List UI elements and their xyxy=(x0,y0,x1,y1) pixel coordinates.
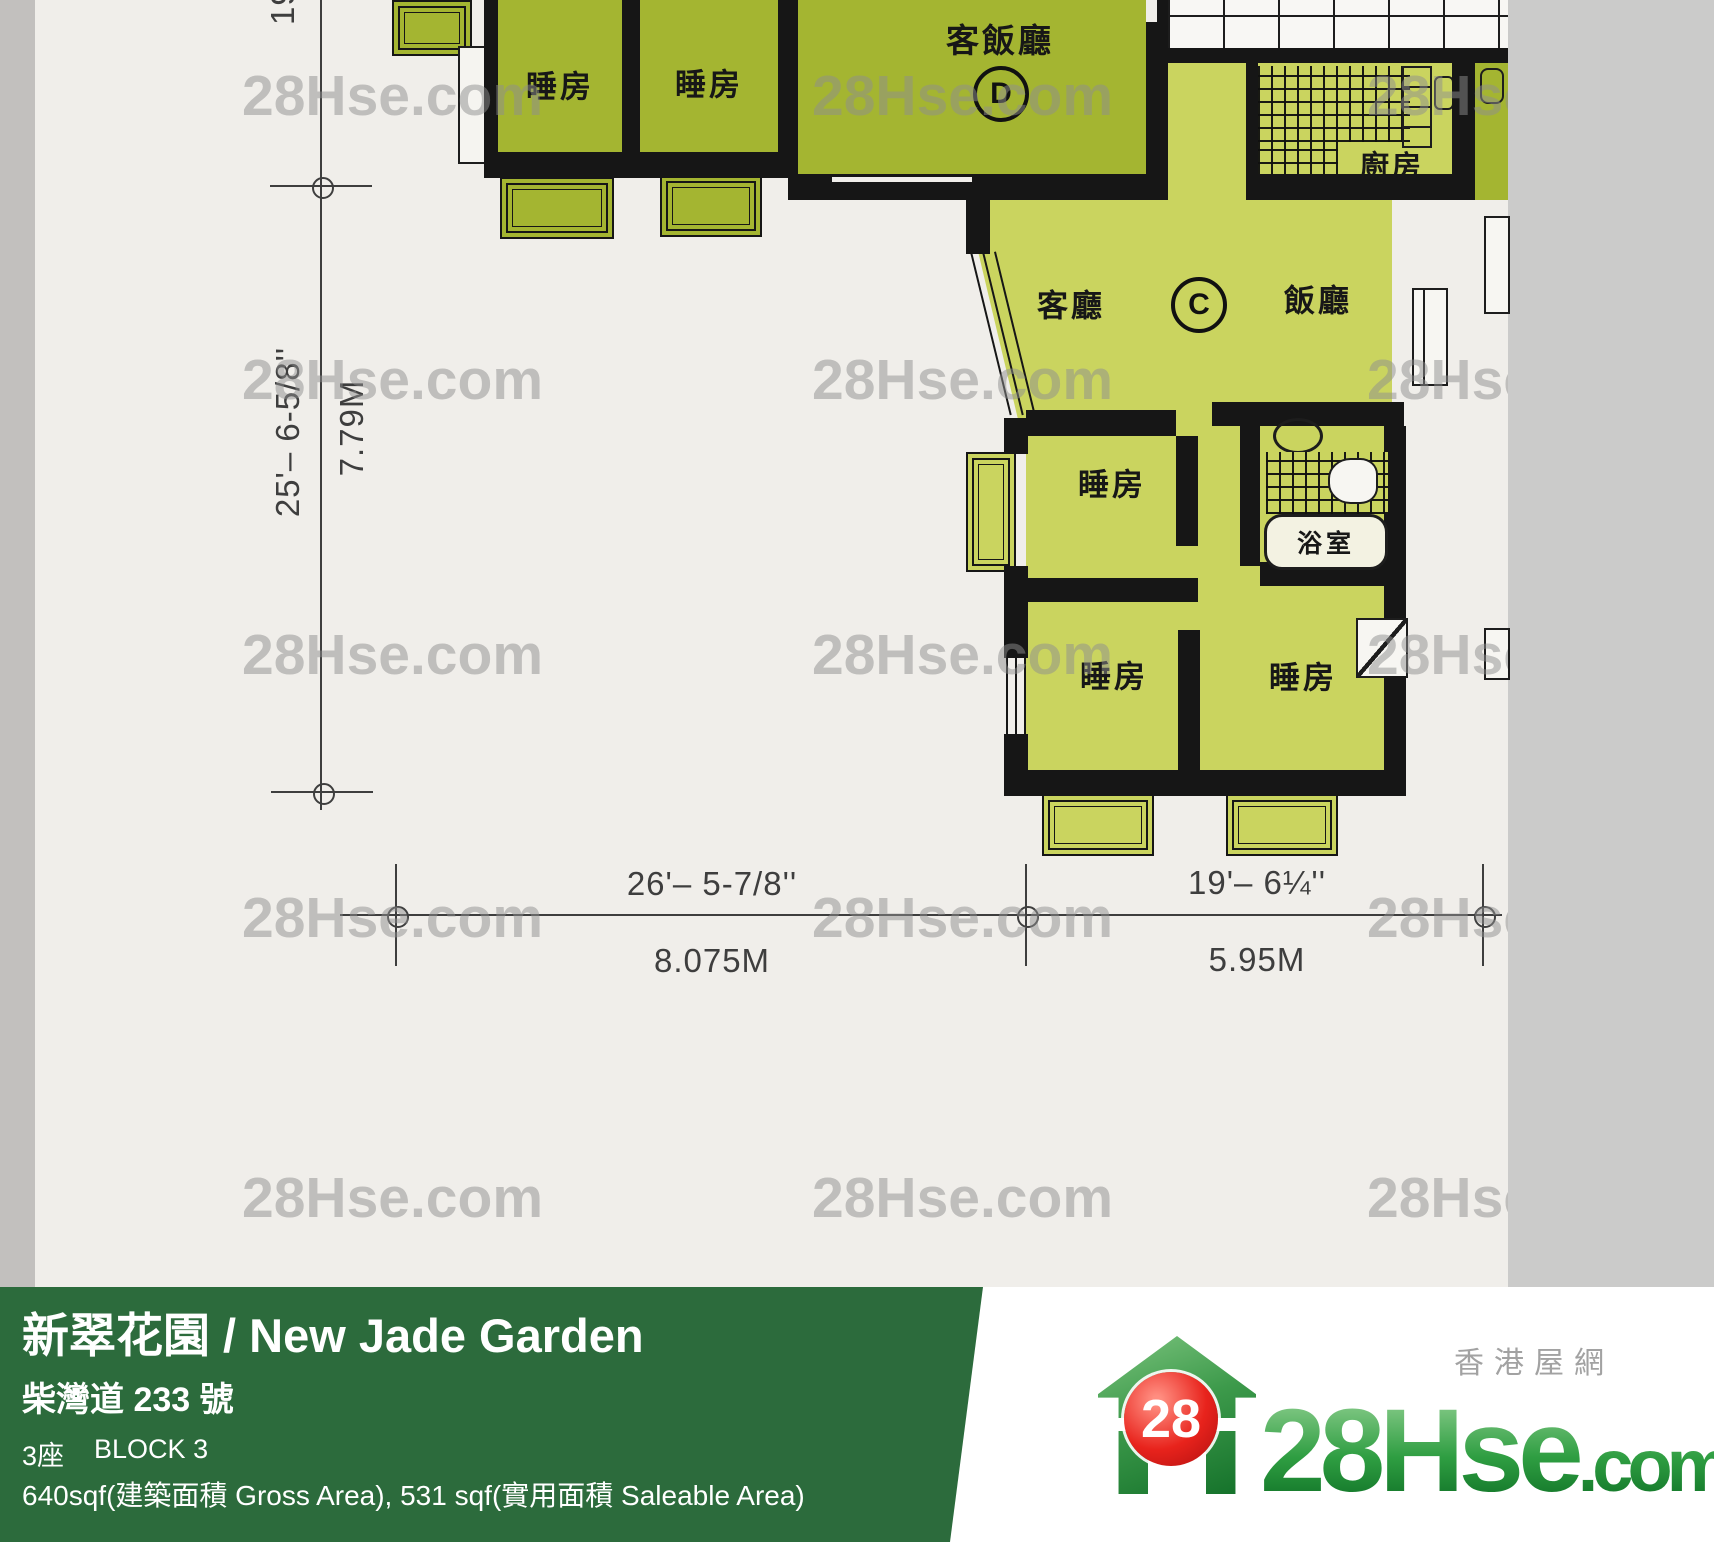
watermark-text: 28Hse.com xyxy=(812,885,1113,951)
watermark-text: 28Hse.com xyxy=(1367,1165,1508,1231)
floorplan-page: 浴室 睡房 睡房 客飯廳 D 廚房 客廳 C 飯廳 睡房 睡房 睡房 25'– … xyxy=(0,0,1714,1542)
watermark-text: 28Hse.com xyxy=(242,622,543,688)
block-en: BLOCK 3 xyxy=(94,1434,208,1473)
watermark-layer: 28Hse.com28Hse.com28Hse.com28Hse.com28Hs… xyxy=(35,0,1508,1287)
watermark-text: 28Hse.com xyxy=(242,63,543,129)
badge-number: 28 xyxy=(1141,1388,1201,1450)
brand-main: 28Hse xyxy=(1260,1392,1578,1510)
badge-28-icon: 28 xyxy=(1124,1372,1218,1466)
brand-suffix: .com xyxy=(1578,1429,1714,1503)
estate-address: 柴灣道 233 號 xyxy=(22,1372,234,1421)
watermark-text: 28Hse.com xyxy=(242,1165,543,1231)
watermark-text: 28Hse.com xyxy=(1367,622,1508,688)
estate-title: 新翠花園 / New Jade Garden xyxy=(22,1297,644,1366)
estate-block: 3座 BLOCK 3 xyxy=(22,1434,208,1473)
brand-text: 28Hse.com xyxy=(1260,1392,1714,1510)
watermark-text: 28Hse.com xyxy=(812,622,1113,688)
watermark-text: 28Hse.com xyxy=(1367,347,1508,413)
watermark-text: 28Hse.com xyxy=(812,1165,1113,1231)
estate-area: 640sqf(建築面積 Gross Area), 531 sqf(實用面積 Sa… xyxy=(22,1474,805,1514)
watermark-text: 28Hse.com xyxy=(1367,63,1508,129)
watermark-text: 28Hse.com xyxy=(812,63,1113,129)
watermark-text: 28Hse.com xyxy=(242,347,543,413)
watermark-text: 28Hse.com xyxy=(1367,885,1508,951)
brand-tagline: 香港屋網 xyxy=(1454,1338,1614,1382)
logo-28hse: 28 28Hse.com 香港屋網 xyxy=(1098,1330,1714,1542)
block-cn: 3座 xyxy=(22,1434,64,1473)
watermark-text: 28Hse.com xyxy=(242,885,543,951)
watermark-text: 28Hse.com xyxy=(812,347,1113,413)
